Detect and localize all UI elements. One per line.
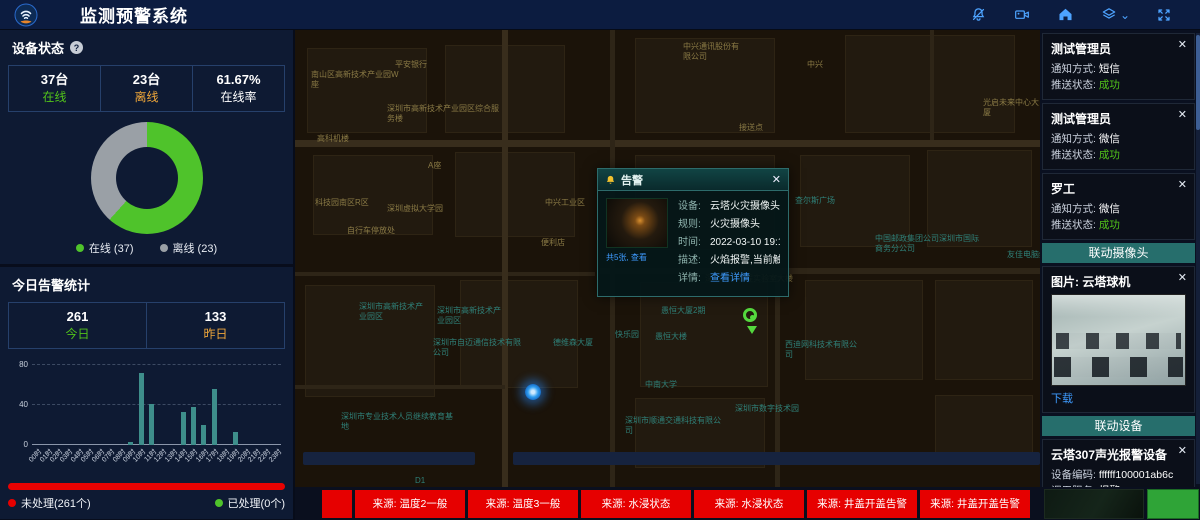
legend-dot-unprocessed bbox=[8, 499, 16, 507]
layers-icon[interactable]: ⌄ bbox=[1100, 6, 1130, 23]
stat-today: 261 今日 bbox=[9, 303, 147, 348]
map-label: 查尔斯广场 bbox=[795, 196, 855, 206]
donut-legend: 在线 (37) 离线 (23) bbox=[0, 240, 293, 256]
stat-yesterday: 133 昨日 bbox=[147, 303, 284, 348]
linked-device-card: ✕云塔307声光报警设备设备编码: ffffff100001ab6c调用服务: … bbox=[1042, 439, 1195, 487]
ticker-alert[interactable]: 来源: 温度2一般 bbox=[355, 490, 465, 518]
close-icon[interactable]: ✕ bbox=[1178, 271, 1187, 284]
notify-method-label: 通知方式: bbox=[1051, 203, 1099, 215]
linked-camera-header[interactable]: 联动摄像头 bbox=[1042, 243, 1195, 263]
notify-method-value: 微信 bbox=[1099, 203, 1120, 215]
device-status-table: 37台 在线 23台 离线 61.67% 在线率 bbox=[8, 65, 285, 112]
today-alarm-title: 今日告警统计 bbox=[12, 275, 90, 294]
notify-method-row: 通知方式: 短信 bbox=[1051, 61, 1186, 77]
push-status-value: 成功 bbox=[1099, 79, 1120, 91]
device-status-title: 设备状态 bbox=[12, 38, 64, 57]
ticker-alert[interactable]: 来源: 水浸状态 bbox=[581, 490, 691, 518]
app-logo-icon bbox=[14, 3, 38, 27]
map-label: 愚恒大楼 bbox=[655, 332, 705, 342]
map-label: 接送点 bbox=[739, 123, 779, 133]
bar-19时 bbox=[233, 432, 238, 445]
today-alarm-table: 261 今日 133 昨日 bbox=[8, 302, 285, 349]
camera-card: ✕ 图片: 云塔球机 下载 bbox=[1042, 266, 1195, 413]
map-label: 中兴通讯股份有限公司 bbox=[683, 42, 745, 61]
alert-field-row: 详情:查看详情 bbox=[678, 270, 780, 288]
scrollbar-thumb[interactable] bbox=[1196, 35, 1200, 130]
notification-card: ✕测试管理员通知方式: 微信推送状态: 成功 bbox=[1042, 103, 1195, 170]
map-pin-green[interactable] bbox=[741, 308, 763, 338]
alarm-snapshot-image[interactable] bbox=[606, 198, 668, 248]
map-label: 科技园南区R区 bbox=[315, 198, 395, 208]
map-label: 中南大学 bbox=[645, 380, 695, 390]
snapshot-view-link[interactable]: 共5张, 查看 bbox=[606, 252, 668, 263]
ticker-alert[interactable]: 来源: 井盖开盖告警 bbox=[920, 490, 1030, 518]
alert-popup-body: 共5张, 查看 设备:云塔火灾摄像头202规则:火灾摄像头时间:2022-03-… bbox=[598, 191, 788, 296]
alert-field-value: 火灾摄像头 bbox=[710, 216, 760, 234]
push-status-row: 推送状态: 成功 bbox=[1051, 217, 1186, 233]
notification-card: ✕测试管理员通知方式: 短信推送状态: 成功 bbox=[1042, 33, 1195, 100]
camera-card-title: 图片: 云塔球机 bbox=[1051, 273, 1186, 290]
grid-line bbox=[32, 404, 281, 405]
push-status-label: 推送状态: bbox=[1051, 219, 1099, 231]
ticker-green-thumbnail[interactable] bbox=[1147, 489, 1199, 519]
chevron-down-icon: ⌄ bbox=[1120, 10, 1130, 20]
device-field-row: 设备编码: ffffff100001ab6c bbox=[1051, 467, 1186, 483]
push-status-value: 成功 bbox=[1099, 149, 1120, 161]
alert-field-label: 描述: bbox=[678, 252, 710, 270]
map-marker-blue[interactable] bbox=[525, 384, 541, 400]
ticker-alert[interactable]: 来源: 温度3一般 bbox=[468, 490, 578, 518]
alert-popup-header: 告警 ✕ bbox=[598, 169, 788, 191]
push-status-value: 成功 bbox=[1099, 219, 1120, 231]
y-axis-tick: 80 bbox=[8, 360, 28, 369]
notify-method-value: 短信 bbox=[1099, 63, 1120, 75]
ticker-alert[interactable]: 来源: 水浸状态 bbox=[694, 490, 804, 518]
help-icon[interactable]: ? bbox=[70, 41, 83, 54]
close-icon[interactable]: ✕ bbox=[1178, 108, 1187, 121]
push-status-label: 推送状态: bbox=[1051, 149, 1099, 161]
map-label: 中国邮政集团公司深圳市国际商务分公司 bbox=[875, 234, 981, 253]
map-label: 深圳虚拟大学园 bbox=[387, 204, 477, 214]
map-label: 深圳市顺通交通科技有限公司 bbox=[625, 416, 723, 435]
alert-field-row: 时间:2022-03-10 19:13:07 bbox=[678, 234, 780, 252]
alert-field-label: 规则: bbox=[678, 216, 710, 234]
progress-legend: 未处理(261个) 已处理(0个) bbox=[8, 495, 285, 511]
linked-devices-header[interactable]: 联动设备 bbox=[1042, 416, 1195, 436]
legend-dot-online bbox=[76, 244, 84, 252]
left-panel: 设备状态 ? 37台 在线 23台 离线 61.67% 在线率 bbox=[0, 30, 295, 520]
top-header: 监测预警系统 ⌄ bbox=[0, 0, 1200, 30]
map-label: 愚恒大厦2期 bbox=[661, 306, 725, 316]
notify-method-value: 微信 bbox=[1099, 133, 1120, 145]
map-label: 深圳市专业技术人员继续教育基地 bbox=[341, 412, 453, 431]
alert-field-label: 时间: bbox=[678, 234, 710, 252]
device-status-section: 设备状态 ? 37台 在线 23台 离线 61.67% 在线率 bbox=[0, 30, 293, 267]
notify-method-label: 通知方式: bbox=[1051, 133, 1099, 145]
ticker-alert[interactable]: 来源: 井盖开盖告警 bbox=[807, 490, 917, 518]
map-label: 西迪网科技术有限公司 bbox=[785, 340, 859, 359]
legend-dot-processed bbox=[215, 499, 223, 507]
alert-popup-title: 告警 bbox=[621, 172, 643, 188]
legend-dot-offline bbox=[160, 244, 168, 252]
app-root: 监测预警系统 ⌄ bbox=[0, 0, 1200, 520]
alert-field-row: 设备:云塔火灾摄像头202 bbox=[678, 198, 780, 216]
bar-14时 bbox=[181, 412, 186, 445]
home-icon[interactable] bbox=[1057, 6, 1074, 23]
right-scrollbar[interactable] bbox=[1196, 33, 1200, 484]
bar-09时 bbox=[128, 442, 133, 445]
map-label: 便利店 bbox=[541, 238, 581, 248]
notification-recipient: 测试管理员 bbox=[1051, 110, 1186, 127]
stat-online: 37台 在线 bbox=[9, 66, 101, 111]
push-status-row: 推送状态: 成功 bbox=[1051, 147, 1186, 163]
alert-ticker: 来源: 温度2一般来源: 温度3一般来源: 水浸状态来源: 水浸状态来源: 井盖… bbox=[295, 487, 1200, 520]
map-label: 德维森大厦 bbox=[553, 338, 613, 348]
bar-16时 bbox=[201, 425, 206, 445]
push-status-label: 推送状态: bbox=[1051, 79, 1099, 91]
alert-field-row: 规则:火灾摄像头 bbox=[678, 216, 780, 234]
close-icon[interactable]: ✕ bbox=[1178, 38, 1187, 51]
hourly-alarm-bar-chart: 0408000时01时02时03时04时05时06时07时08时09时10时11… bbox=[8, 353, 285, 475]
alert-field-row: 描述:火焰报警,当前触发值为... bbox=[678, 252, 780, 270]
device-name: 云塔307声光报警设备 bbox=[1051, 446, 1186, 463]
map-label: 自行车停放处 bbox=[347, 226, 427, 236]
close-icon[interactable]: ✕ bbox=[772, 173, 781, 186]
header-actions: ⌄ bbox=[970, 6, 1172, 23]
page-title: 监测预警系统 bbox=[80, 2, 188, 27]
alert-field-value: 火焰报警,当前触发值为... bbox=[710, 252, 780, 270]
close-icon[interactable]: ✕ bbox=[1178, 444, 1187, 457]
notify-method-row: 通知方式: 微信 bbox=[1051, 131, 1186, 147]
fullscreen-icon[interactable] bbox=[1156, 7, 1172, 23]
video-camera-icon[interactable] bbox=[1013, 7, 1031, 23]
alert-field-label: 设备: bbox=[678, 198, 710, 216]
close-icon[interactable]: ✕ bbox=[1178, 178, 1187, 191]
camera-photo[interactable] bbox=[1051, 294, 1186, 386]
map-canvas[interactable]: 中兴通讯股份有限公司平安银行南山区高新技术产业园W座深圳市高新技术产业园区综合服… bbox=[295, 30, 1040, 487]
map-label: 深圳市高新技术产业园区 bbox=[437, 306, 507, 325]
y-axis-tick: 0 bbox=[8, 440, 28, 449]
map-label: 快乐园 bbox=[615, 330, 655, 340]
device-field-label: 设备编码: bbox=[1051, 469, 1099, 481]
alert-field-label: 详情: bbox=[678, 270, 710, 288]
map-label: 南山区高新技术产业园W座 bbox=[311, 70, 403, 89]
stat-offline: 23台 离线 bbox=[101, 66, 193, 111]
notify-method-label: 通知方式: bbox=[1051, 63, 1099, 75]
alert-field-value: 云塔火灾摄像头202 bbox=[710, 198, 780, 216]
alarm-bell-icon bbox=[605, 174, 616, 186]
ticker-alert-partial[interactable] bbox=[322, 490, 352, 518]
push-status-row: 推送状态: 成功 bbox=[1051, 77, 1186, 93]
alert-popup: 告警 ✕ 共5张, 查看 设备:云塔火灾摄像头202规则:火灾摄像头时间:202… bbox=[597, 168, 789, 297]
map-label: 中兴 bbox=[807, 60, 837, 70]
map-label: 深圳市高新技术产业园区综合服务楼 bbox=[387, 104, 499, 123]
view-detail-link[interactable]: 查看详情 bbox=[710, 270, 750, 288]
map-label: 平安银行 bbox=[395, 60, 455, 70]
download-link[interactable]: 下载 bbox=[1051, 390, 1186, 406]
map-label: D1 bbox=[415, 476, 435, 486]
bar-15时 bbox=[191, 407, 196, 445]
map-label: 深圳市高新技术产业园区 bbox=[359, 302, 429, 321]
notification-card: ✕罗工通知方式: 微信推送状态: 成功 bbox=[1042, 173, 1195, 240]
map-label: A座 bbox=[428, 161, 458, 171]
right-panel: ✕测试管理员通知方式: 短信推送状态: 成功✕测试管理员通知方式: 微信推送状态… bbox=[1040, 30, 1200, 487]
device-field-value: ffffff100001ab6c bbox=[1099, 469, 1173, 481]
notification-recipient: 罗工 bbox=[1051, 180, 1186, 197]
map-label: 深圳市数字技术园 bbox=[735, 404, 831, 414]
notifications-off-icon[interactable] bbox=[970, 6, 987, 23]
bar-10时 bbox=[139, 373, 144, 445]
device-status-donut-chart bbox=[91, 122, 203, 234]
bar-11时 bbox=[149, 404, 154, 445]
map-label: 光启未来中心大厦 bbox=[983, 98, 1040, 117]
x-axis-line bbox=[32, 444, 281, 445]
alert-field-value: 2022-03-10 19:13:07 bbox=[710, 234, 780, 252]
grid-line bbox=[32, 364, 281, 365]
notification-recipient: 测试管理员 bbox=[1051, 40, 1186, 57]
notify-method-row: 通知方式: 微信 bbox=[1051, 201, 1186, 217]
y-axis-tick: 40 bbox=[8, 400, 28, 409]
bar-17时 bbox=[212, 389, 217, 445]
stat-online-rate: 61.67% 在线率 bbox=[193, 66, 284, 111]
unprocessed-progress-bar bbox=[8, 483, 285, 490]
ticker-camera-thumbnail[interactable] bbox=[1044, 489, 1144, 519]
map-label: 高科机楼 bbox=[317, 134, 377, 144]
map-label: 友佳电脑维修 bbox=[1007, 250, 1040, 260]
today-alarm-section: 今日告警统计 261 今日 133 昨日 0408000时01时02时03时04… bbox=[0, 267, 293, 520]
map-label: 深圳市自迈通信技术有限公司 bbox=[433, 338, 525, 357]
